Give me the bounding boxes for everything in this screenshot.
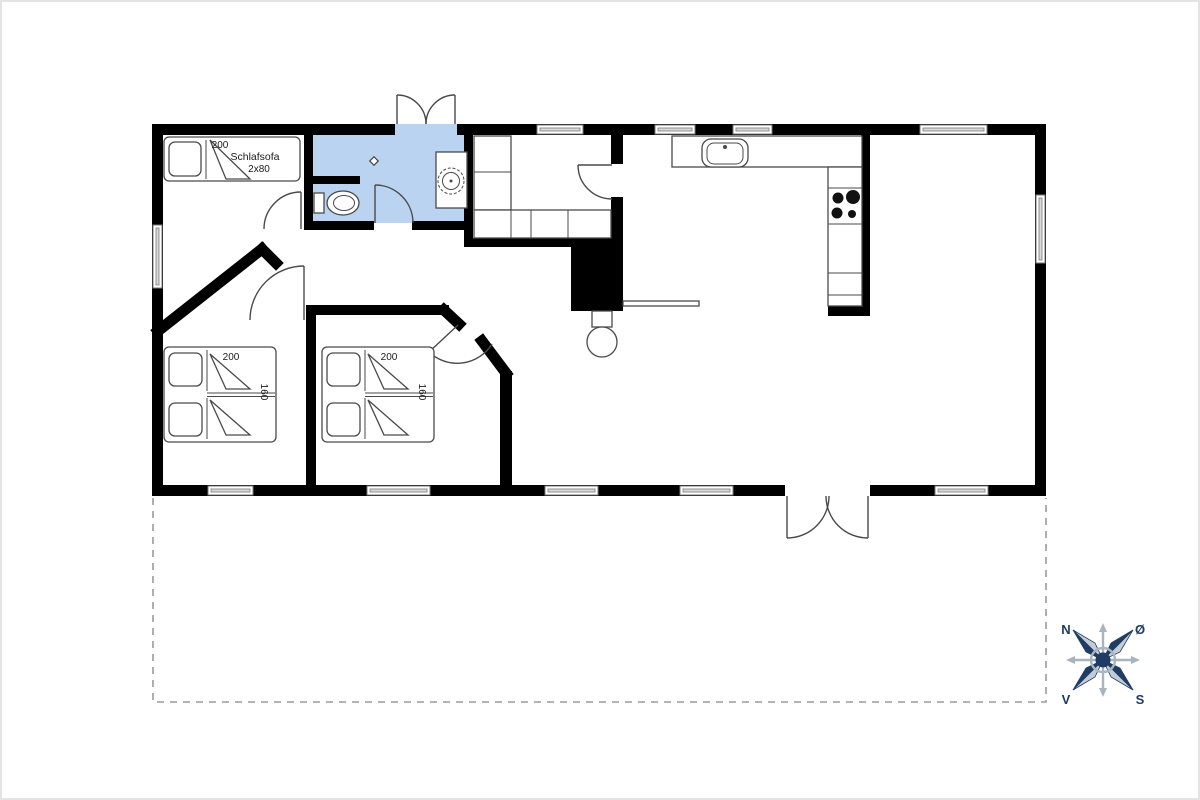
wall-top-left: [152, 124, 395, 135]
bed1-length-label: 200: [223, 352, 240, 363]
window: [545, 486, 598, 495]
washbasin: [436, 152, 467, 208]
window: [1036, 195, 1045, 263]
sleep-sofa: 200 Schlafsofa 2x80: [164, 137, 300, 181]
kitchen: [672, 136, 862, 306]
wall-kitchen-stub: [828, 306, 870, 316]
bench: [623, 301, 699, 306]
floor-plan-svg: 200 Schlafsofa 2x80 200 160 200 160 N Ø: [0, 0, 1200, 800]
compass-east-label: Ø: [1135, 622, 1145, 637]
kitchen-sink: [702, 139, 748, 167]
terrace-double-door: [787, 496, 868, 538]
bed1-width-label: 160: [258, 384, 269, 401]
stove-body: [587, 327, 617, 357]
compass-center: [1096, 653, 1111, 668]
toilet: [314, 191, 359, 215]
bedroom-2: 200 160: [322, 347, 434, 442]
wall-bathroom-bottom-right: [412, 221, 473, 230]
fireplace-mass: [571, 247, 623, 311]
kitchen-counter: [672, 136, 862, 167]
terrace-outline: [153, 498, 1046, 702]
window: [733, 125, 772, 134]
sofa-name-label: Schlafsofa: [230, 151, 279, 163]
wall-toilet-partition: [304, 176, 360, 184]
sofa-size-label: 2x80: [248, 164, 270, 175]
wall-bedroom2-corner-2: [482, 341, 506, 373]
wall-hall-right-upper: [611, 135, 623, 164]
entrance-double-door: [397, 95, 455, 124]
sofa-length-label: 200: [212, 140, 229, 151]
window: [537, 125, 583, 134]
compass-south-label: S: [1136, 692, 1145, 707]
wall-bedroom2-top: [306, 305, 449, 315]
hall-closet-door: [578, 165, 612, 199]
window: [935, 486, 988, 495]
window: [655, 125, 695, 134]
window: [680, 486, 733, 495]
sleeping-room-door: [264, 192, 301, 229]
wall-bathroom-bottom-left: [304, 221, 374, 230]
bed2-length-label: 200: [381, 352, 398, 363]
window: [920, 125, 987, 134]
bedroom-1-door: [250, 266, 304, 320]
wardrobe-cabinets: [474, 136, 611, 238]
wall-bedroom2-right: [500, 371, 512, 485]
wall-hall-diagonal-stub: [262, 249, 276, 263]
compass-west-label: V: [1062, 692, 1071, 707]
wall-hall-diagonal: [158, 249, 262, 331]
compass-north-label: N: [1061, 622, 1070, 637]
bedroom-1: 200 160: [164, 347, 276, 442]
wall-left: [152, 124, 163, 496]
compass-rose: N Ø S V: [1061, 622, 1145, 707]
entrance-threshold: [395, 124, 457, 135]
stove-flue: [592, 311, 612, 327]
wall-bedroom2-corner-1: [444, 310, 459, 324]
window: [208, 486, 253, 495]
window: [153, 225, 162, 288]
window: [367, 486, 430, 495]
wall-right: [1035, 124, 1046, 496]
bed2-width-label: 160: [416, 384, 427, 401]
wall-bedroom-divider: [306, 313, 316, 485]
wall-hall-bottom: [464, 238, 623, 247]
